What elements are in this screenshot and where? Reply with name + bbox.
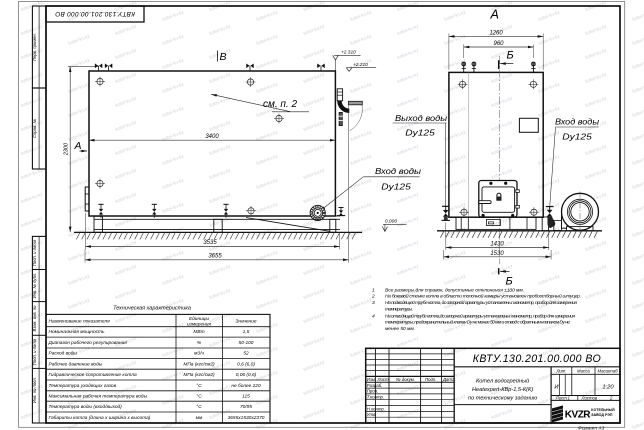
svg-text:960: 960 [493, 41, 504, 47]
svg-text:Масса: Масса [577, 369, 590, 374]
svg-text:МВт: МВт [193, 329, 204, 335]
svg-text:Выход воды: Выход воды [395, 114, 447, 123]
svg-text:52: 52 [243, 351, 249, 357]
svg-text:Взам. инв. №: Взам. инв. № [32, 305, 37, 331]
svg-text:Разраб.: Разраб. [367, 383, 383, 388]
svg-text:Инв. № дубл.: Инв. № дубл. [32, 273, 37, 299]
svg-text:см. п. 2: см. п. 2 [263, 99, 297, 110]
svg-text:Наименование показателя: Наименование показателя [49, 319, 111, 325]
svg-text:м3/ч: м3/ч [194, 351, 204, 357]
svg-text:Дата: Дата [442, 377, 455, 382]
svg-text:МПа (кгс/см2): МПа (кгс/см2) [183, 372, 215, 378]
svg-text:Формат А3: Формат А3 [578, 426, 605, 430]
svg-text:50-100: 50-100 [239, 340, 254, 346]
svg-text:Heatexpert-КВр-1,5-К(К): Heatexpert-КВр-1,5-К(К) [472, 387, 533, 393]
svg-text:МПа (кгс/см2): МПа (кгс/см2) [183, 361, 215, 367]
svg-text:Номинальная мощность: Номинальная мощность [49, 329, 106, 335]
svg-text:°С: °С [196, 404, 202, 410]
svg-text:Единицы: Единицы [189, 316, 210, 322]
svg-text:3655: 3655 [208, 254, 222, 260]
svg-text:%: % [197, 340, 202, 346]
svg-text:А: А [490, 8, 499, 22]
svg-text:1:20: 1:20 [602, 385, 614, 391]
svg-text:измерения: измерения [187, 323, 211, 328]
svg-text:Dy125: Dy125 [562, 132, 592, 142]
svg-text:Температура уходящих газов: Температура уходящих газов [49, 383, 117, 389]
svg-text:4: 4 [372, 314, 375, 320]
svg-text:2: 2 [371, 294, 375, 300]
svg-text:Н.контр.: Н.контр. [367, 406, 385, 411]
svg-text:3400: 3400 [205, 134, 219, 140]
svg-text:Рабочее давление воды: Рабочее давление воды [49, 361, 103, 367]
svg-text:3655х1530х2370: 3655х1530х2370 [228, 415, 265, 421]
svg-text:КОТЕЛЬНЫЙ: КОТЕЛЬНЫЙ [591, 408, 615, 412]
svg-text:Dy125: Dy125 [405, 128, 435, 138]
svg-text:Листов: Листов [581, 396, 598, 401]
svg-text:температуры.: температуры. [385, 307, 413, 312]
svg-text:Расход воды: Расход воды [49, 351, 78, 357]
svg-text:70/95: 70/95 [240, 404, 252, 410]
svg-text:Вход воды: Вход воды [375, 167, 421, 176]
svg-text:На боковой стенке котла в обла: На боковой стенке котла в области топочн… [385, 293, 581, 300]
svg-text:Изм.: Изм. [367, 377, 376, 382]
svg-text:Все размеры для справок, допус: Все размеры для справок, допустимые откл… [385, 287, 524, 293]
svg-text:№ докум.: № докум. [396, 377, 415, 382]
svg-text:Утв.: Утв. [367, 412, 377, 417]
svg-text:Пров.: Пров. [367, 389, 378, 394]
svg-text:°С: °С [196, 394, 202, 400]
svg-text:°С: °С [196, 383, 202, 389]
svg-text:Подп.: Подп. [425, 377, 436, 382]
svg-text:Инв. № подл.: Инв. № подл. [32, 377, 37, 403]
svg-text:Dy125: Dy125 [381, 182, 411, 192]
svg-text:3535: 3535 [203, 240, 217, 246]
svg-text:температуры, предохранительный: температуры, предохранительный клапан Dу… [385, 319, 570, 326]
svg-text:ЗАВОД РЭП: ЗАВОД РЭП [591, 413, 613, 417]
svg-text:Габариты котла (длина х ширина: Габариты котла (длина х ширина х высота) [49, 415, 151, 421]
svg-text:Техническая характеристика: Техническая характеристика [113, 305, 191, 311]
svg-text:Перв. примен.: Перв. примен. [32, 33, 37, 61]
svg-text:На отводящей трубе котла,до за: На отводящей трубе котла,до запорной арм… [385, 313, 575, 320]
svg-text:1,5: 1,5 [243, 329, 250, 335]
svg-text:0.000: 0.000 [385, 219, 397, 225]
svg-text:А: А [74, 140, 82, 152]
svg-text:Котел водогрейный: Котел водогрейный [476, 378, 529, 385]
svg-text:Справ. №: Справ. № [32, 119, 37, 138]
svg-text:Вход воды: Вход воды [555, 118, 599, 127]
svg-text:Максимальная рабочая температу: Максимальная рабочая температура воды [49, 394, 148, 400]
svg-text:Подп. и дата: Подп. и дата [32, 338, 37, 365]
svg-text:Температура воды (вход/выход): Температура воды (вход/выход) [49, 404, 123, 410]
svg-text:КВТУ.130.201.00.000 ВО: КВТУ.130.201.00.000 ВО [55, 10, 135, 17]
svg-text:менее 50 мм.: менее 50 мм. [385, 326, 415, 332]
svg-text:На подводящей трубе котла, до: На подводящей трубе котла, до запорной а… [385, 299, 577, 306]
svg-text:не более 220: не более 220 [231, 383, 261, 389]
svg-text:1530: 1530 [490, 251, 504, 257]
svg-text:1430: 1430 [490, 242, 504, 248]
svg-text:1260: 1260 [489, 30, 503, 36]
svg-text:Лист: Лист [555, 396, 567, 401]
svg-text:КВТУ.130.201.00.000 ВО: КВТУ.130.201.00.000 ВО [473, 353, 601, 365]
svg-text:Диапазон рабочего регулировани: Диапазон рабочего регулирования [48, 340, 128, 346]
svg-text:3: 3 [372, 300, 375, 306]
svg-text:мм: мм [196, 416, 203, 421]
svg-text:Подп. и дата: Подп. и дата [32, 239, 37, 266]
svg-text:115: 115 [242, 394, 250, 400]
svg-text:KVZR: KVZR [565, 410, 592, 421]
svg-text:по техническому заданию: по техническому заданию [468, 396, 538, 402]
svg-text:1: 1 [372, 287, 375, 293]
svg-text:2300: 2300 [64, 142, 70, 156]
svg-text:Гидравлическое сопротивление к: Гидравлическое сопротивление котла [49, 372, 137, 378]
svg-text:Лит.: Лит. [555, 369, 566, 374]
svg-text:0,06 (0,6): 0,06 (0,6) [236, 372, 257, 378]
svg-text:Масштаб: Масштаб [597, 369, 618, 374]
svg-text:Т.контр.: Т.контр. [367, 394, 384, 399]
svg-text:+2.210: +2.210 [353, 62, 368, 68]
svg-text:Б: Б [506, 276, 513, 288]
svg-text:0,6 (6,0): 0,6 (6,0) [237, 361, 255, 367]
svg-text:+2.310: +2.310 [341, 49, 356, 55]
svg-text:Б: Б [507, 50, 514, 62]
svg-text:Лист: Лист [377, 377, 389, 382]
svg-text:В: В [220, 51, 227, 63]
svg-text:Значение: Значение [235, 319, 256, 325]
